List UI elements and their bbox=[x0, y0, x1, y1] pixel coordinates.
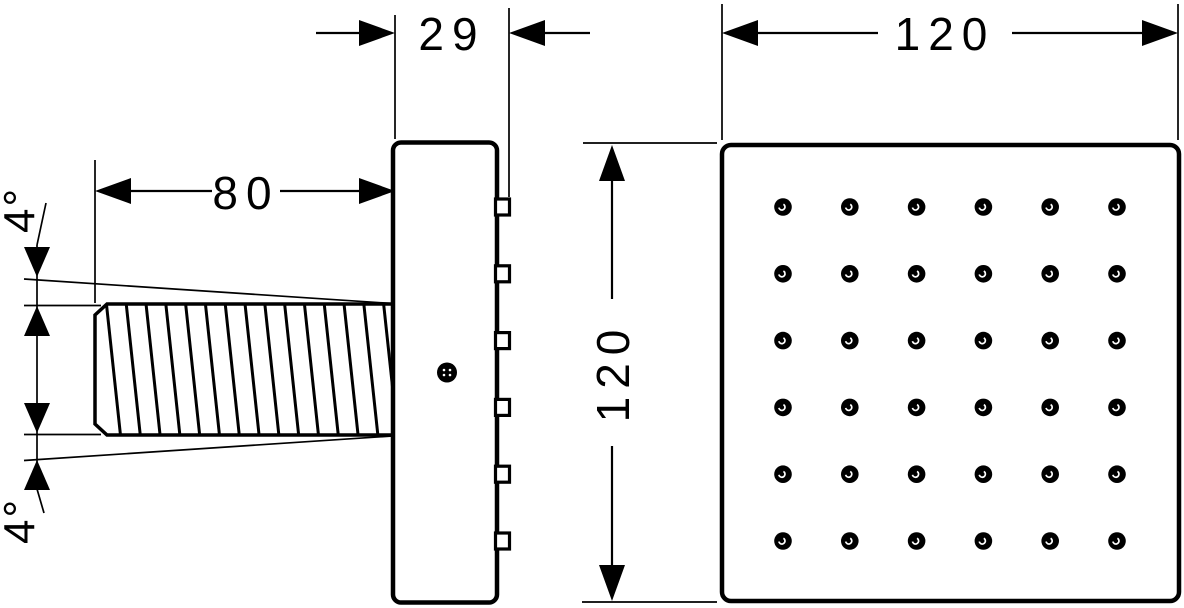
nozzle-dot bbox=[841, 465, 859, 483]
nozzle-dot bbox=[774, 198, 792, 216]
dim-label-120-height: 120 bbox=[587, 322, 639, 423]
nozzle-tab bbox=[496, 266, 510, 282]
nozzle-dot bbox=[1041, 399, 1059, 417]
screw-dot bbox=[437, 363, 457, 383]
taper-line-bottom bbox=[24, 436, 392, 461]
nozzle-dot bbox=[841, 532, 859, 550]
faceplate-outline bbox=[722, 145, 1179, 601]
nozzle-dot bbox=[774, 265, 792, 283]
nozzle-dot bbox=[975, 198, 993, 216]
dimension-body-length-80: 80 bbox=[95, 160, 395, 303]
dim-label-29: 29 bbox=[418, 8, 485, 60]
nozzle-dot bbox=[1041, 198, 1059, 216]
angle-arrow-bottom-down bbox=[24, 403, 50, 433]
taper-line-top bbox=[24, 279, 392, 304]
dimension-drawing: 4° 4° 29 80 bbox=[0, 0, 1184, 608]
front-view bbox=[722, 145, 1179, 601]
arrow-29-right bbox=[509, 20, 545, 46]
nozzle-dot bbox=[774, 465, 792, 483]
dimension-height-120: 120 bbox=[582, 143, 717, 602]
dimension-width-120: 120 bbox=[722, 4, 1178, 140]
nozzle-dot bbox=[1041, 332, 1059, 350]
arrow-80-left bbox=[95, 178, 131, 204]
side-view-body bbox=[95, 300, 398, 440]
nozzle-dot bbox=[908, 532, 926, 550]
nozzle-dot bbox=[774, 532, 792, 550]
nozzle-dot bbox=[975, 465, 993, 483]
nozzle-dot bbox=[1108, 399, 1126, 417]
nozzle-dot bbox=[1108, 532, 1126, 550]
dim-label-80: 80 bbox=[212, 167, 279, 219]
nozzle-dot bbox=[908, 465, 926, 483]
nozzle-tab bbox=[496, 466, 510, 482]
cone-outline bbox=[95, 304, 393, 435]
nozzle-dot bbox=[1108, 332, 1126, 350]
dim-label-120-width: 120 bbox=[895, 8, 996, 60]
angle-arrow-top-down bbox=[24, 247, 50, 277]
angle-dimension-callouts: 4° 4° bbox=[0, 187, 50, 544]
technical-drawing-canvas: 4° 4° 29 80 bbox=[0, 0, 1184, 608]
nozzle-dot bbox=[1041, 532, 1059, 550]
angle-arrow-bottom-up bbox=[24, 460, 50, 490]
arrow-120h-up bbox=[599, 145, 625, 181]
nozzle-dot bbox=[975, 265, 993, 283]
nozzle-tab bbox=[496, 533, 510, 549]
nozzle-tab bbox=[496, 399, 510, 415]
arrow-29-left bbox=[359, 20, 395, 46]
arrow-120w-left bbox=[722, 20, 758, 46]
nozzle-dot bbox=[1108, 465, 1126, 483]
side-view-plate bbox=[393, 143, 510, 603]
nozzle-dot bbox=[841, 399, 859, 417]
angle-label-bottom: 4° bbox=[0, 498, 45, 544]
nozzle-tab bbox=[496, 333, 510, 349]
nozzle-dot bbox=[975, 399, 993, 417]
nozzle-dot bbox=[1041, 265, 1059, 283]
arrow-120h-down bbox=[599, 565, 625, 601]
nozzle-dot bbox=[1108, 265, 1126, 283]
nozzle-dot bbox=[841, 198, 859, 216]
angle-arrow-top-up bbox=[24, 306, 50, 336]
angle-label-top: 4° bbox=[0, 187, 45, 233]
nozzle-dot bbox=[1041, 465, 1059, 483]
nozzle-dot bbox=[774, 332, 792, 350]
nozzle-dot bbox=[841, 332, 859, 350]
nozzle-dot bbox=[841, 265, 859, 283]
nozzle-dot bbox=[774, 399, 792, 417]
nozzle-dot bbox=[908, 265, 926, 283]
nozzle-dot bbox=[908, 198, 926, 216]
nozzle-dot bbox=[908, 332, 926, 350]
nozzle-dot bbox=[1108, 198, 1126, 216]
nozzle-tab bbox=[496, 199, 510, 215]
nozzle-dot bbox=[975, 332, 993, 350]
nozzle-dot bbox=[975, 532, 993, 550]
arrow-120w-right bbox=[1142, 20, 1178, 46]
arrow-80-right bbox=[359, 178, 395, 204]
nozzle-dot bbox=[908, 399, 926, 417]
